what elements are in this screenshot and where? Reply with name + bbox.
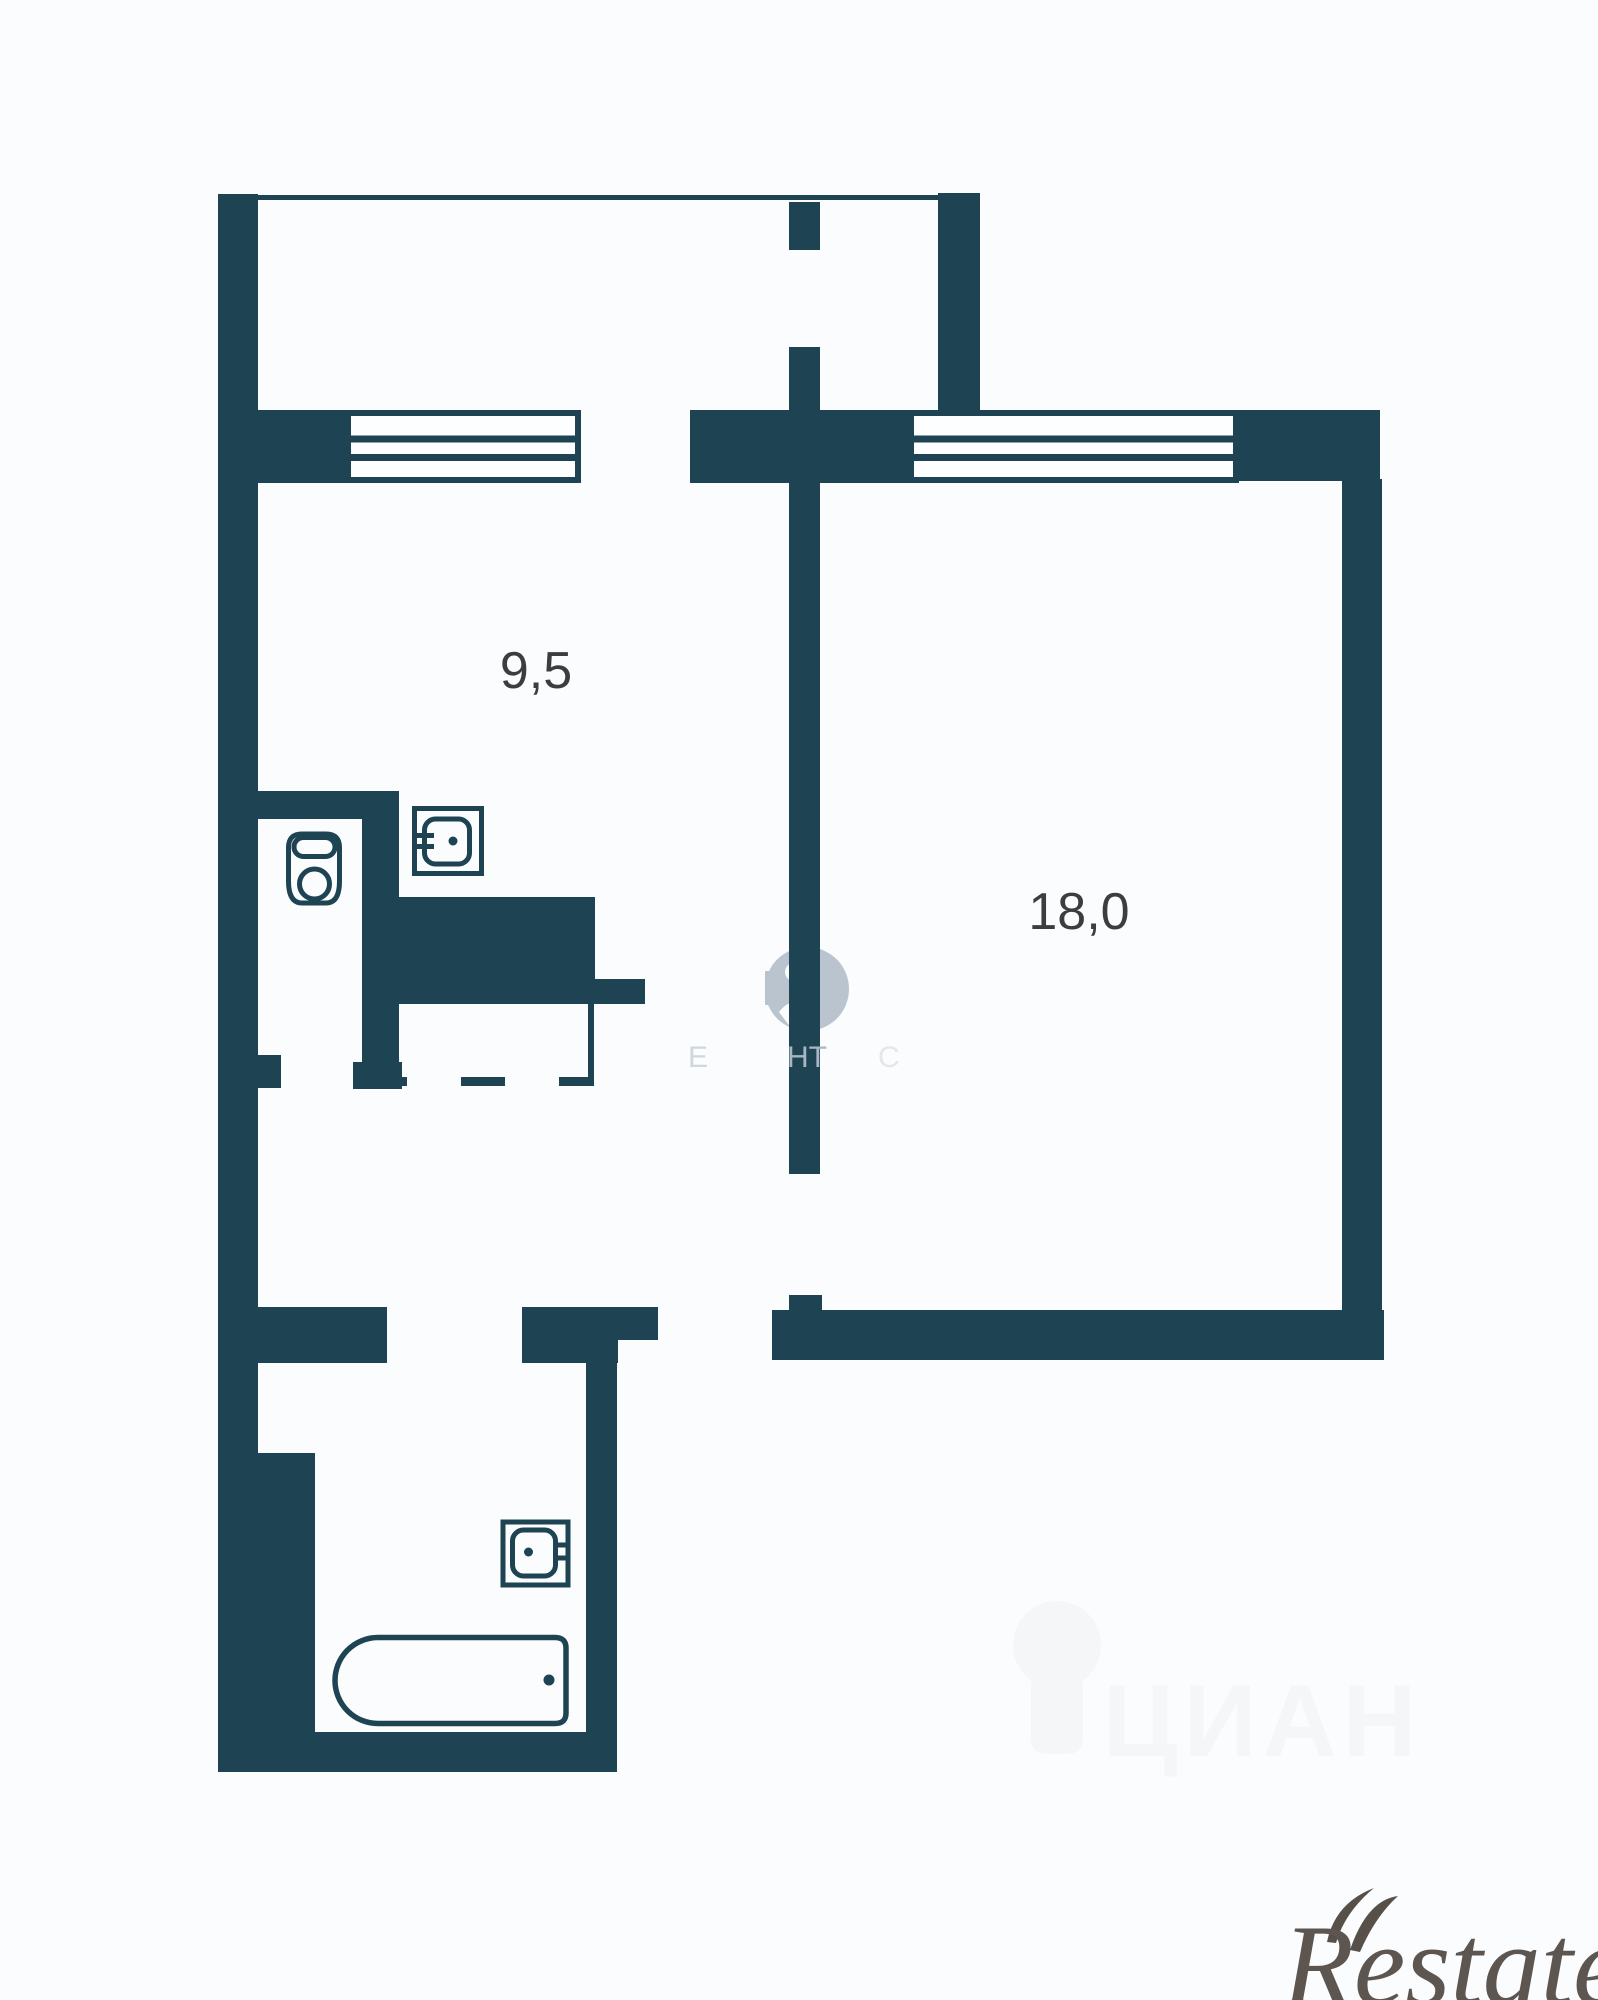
svg-text:Е: Е: [688, 1041, 708, 1074]
svg-text:НТ: НТ: [787, 1041, 827, 1074]
svg-text:9,5: 9,5: [500, 642, 572, 700]
svg-text:ЦИАН: ЦИАН: [1103, 1664, 1422, 1778]
svg-text:Restate: Restate: [1282, 1902, 1598, 2000]
svg-text:С: С: [878, 1041, 900, 1074]
svg-text:18,0: 18,0: [1028, 883, 1129, 941]
